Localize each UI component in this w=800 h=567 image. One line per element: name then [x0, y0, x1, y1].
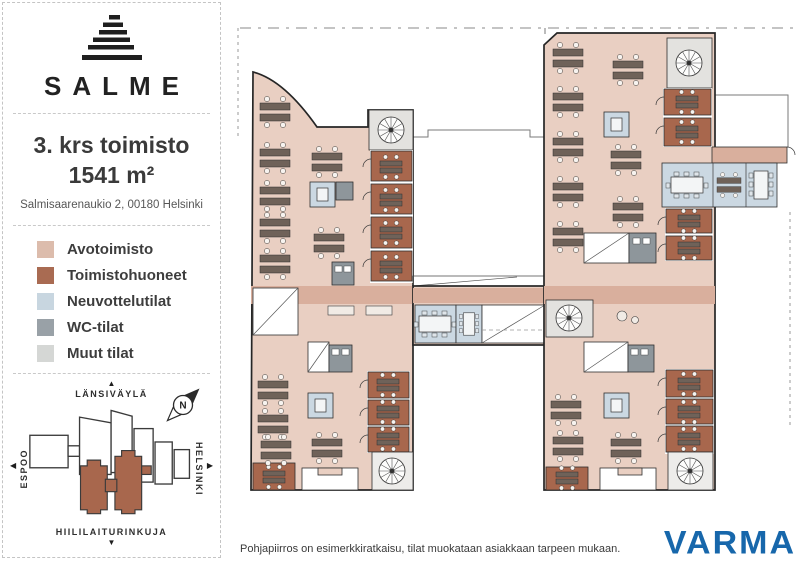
south-arrow-icon: ▼: [3, 538, 220, 547]
legend-swatch: [37, 241, 54, 258]
legend-swatch: [37, 319, 54, 336]
logo: SALME: [3, 13, 220, 102]
location-map: ▲ LÄNSIVÄYLÄ N: [3, 376, 220, 559]
site-building: [174, 450, 189, 479]
spiral-stair-icon: [677, 458, 703, 484]
page-title: 3. krs toimisto 1541 m²: [3, 131, 220, 191]
separator: [13, 113, 210, 114]
legend-item-neuvottelutilat: Neuvottelutilat: [37, 293, 212, 310]
varma-logo: VARMA: [664, 525, 796, 562]
east-arrow-icon: ▶: [207, 461, 213, 470]
bridge: [413, 276, 545, 345]
spiral-stair-icon: [556, 305, 582, 331]
site-building: [155, 442, 172, 484]
legend-item-wc-tilat: WC-tilat: [37, 319, 212, 336]
separator: [13, 225, 210, 226]
context-wall: [715, 95, 788, 147]
legend-swatch: [37, 267, 54, 284]
disclaimer-text: Pohjapiirros on esimerkkiratkaisu, tilat…: [240, 543, 620, 555]
legend-swatch: [37, 293, 54, 310]
salme-pyramid-icon: [79, 15, 145, 65]
page: SALME 3. krs toimisto 1541 m² Salmisaare…: [0, 0, 800, 567]
legend: Avotoimisto Toimistohuoneet Neuvotteluti…: [37, 241, 212, 371]
site-plan: [27, 404, 199, 522]
separator: [13, 373, 210, 374]
spiral-stair-icon: [378, 117, 404, 143]
meeting-table: [749, 171, 773, 199]
sidebar: SALME 3. krs toimisto 1541 m² Salmisaare…: [2, 2, 221, 558]
logo-text: SALME: [3, 71, 220, 102]
floor-area: 1541 m²: [3, 161, 220, 191]
left-wing: [251, 72, 413, 490]
site-building: [68, 446, 79, 457]
legend-swatch: [37, 345, 54, 362]
legend-item-toimistohuoneet: Toimistohuoneet: [37, 267, 212, 284]
floor-title: 3. krs toimisto: [3, 131, 220, 161]
highlighted-building: [81, 451, 152, 514]
spiral-stair-icon: [676, 50, 702, 76]
spiral-stair-icon: [379, 458, 405, 484]
terrace-edge: [413, 130, 545, 137]
west-arrow-icon: ◀: [10, 461, 16, 470]
right-wing: [544, 33, 795, 490]
city-label-east: HELSINKI: [194, 424, 204, 514]
floor-plan: [232, 0, 800, 527]
address: Salmisaarenaukio 2, 00180 Helsinki: [3, 199, 220, 211]
city-label-west: ESPOO: [19, 424, 29, 514]
site-building: [30, 435, 68, 467]
street-label-south: HIILILAITURINKUJA: [3, 527, 220, 537]
meeting-table: [459, 313, 478, 335]
legend-item-muut-tilat: Muut tilat: [37, 345, 212, 362]
legend-item-avotoimisto: Avotoimisto: [37, 241, 212, 258]
